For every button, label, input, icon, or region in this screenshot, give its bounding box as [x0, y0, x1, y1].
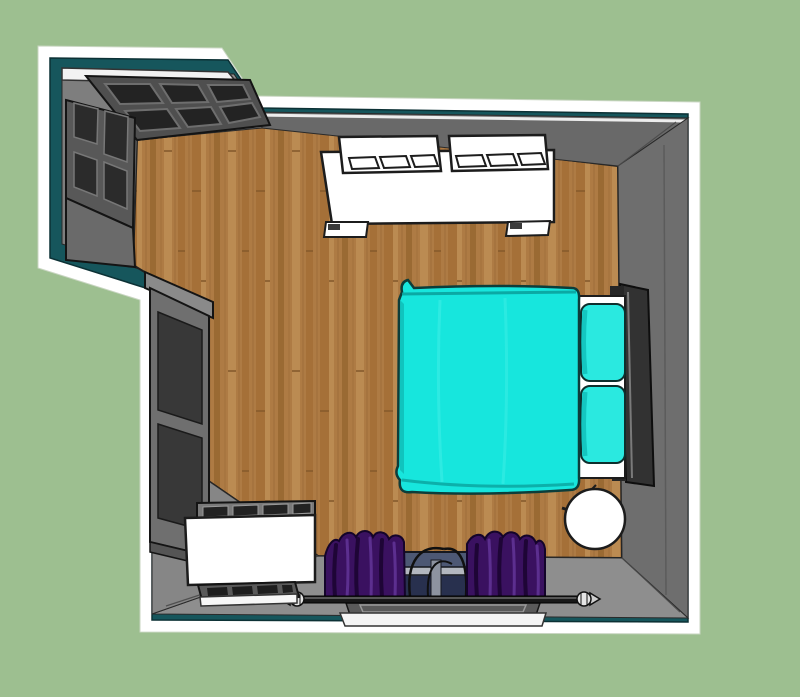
dresser-top	[185, 515, 315, 585]
wardrobe-panel	[158, 424, 202, 530]
pillow-shading	[584, 392, 586, 456]
armoire-panel	[104, 111, 128, 162]
grille-base	[200, 594, 297, 606]
curtain-left-body	[325, 531, 405, 600]
floor-grille[interactable]	[198, 582, 299, 606]
sofa[interactable]	[321, 135, 554, 237]
wardrobe-panel	[158, 312, 202, 424]
window-sill	[340, 613, 546, 626]
nightstand-top	[565, 489, 625, 549]
spread-edge-shade	[400, 300, 404, 474]
bed[interactable]	[396, 280, 654, 494]
dresser[interactable]	[185, 501, 315, 585]
pillow-shading	[584, 310, 586, 374]
armoire[interactable]	[66, 100, 135, 267]
curtain-right-body	[467, 532, 545, 600]
bed-pillow	[581, 304, 625, 381]
bed-spread	[396, 280, 579, 494]
spread-top-crease	[402, 292, 576, 294]
sofa-foot-shadow	[328, 224, 340, 230]
floor-plan-svg	[0, 0, 800, 697]
rod-bar	[300, 596, 582, 603]
armoire-panel	[74, 103, 98, 144]
curtain-left[interactable]	[325, 531, 405, 600]
room-render	[0, 0, 800, 697]
headboard-rail	[610, 286, 624, 295]
sofa-foot-shadow	[510, 223, 522, 229]
bed-pillow	[581, 386, 625, 463]
window-mullion	[431, 560, 441, 600]
curtain-right[interactable]	[467, 532, 545, 600]
